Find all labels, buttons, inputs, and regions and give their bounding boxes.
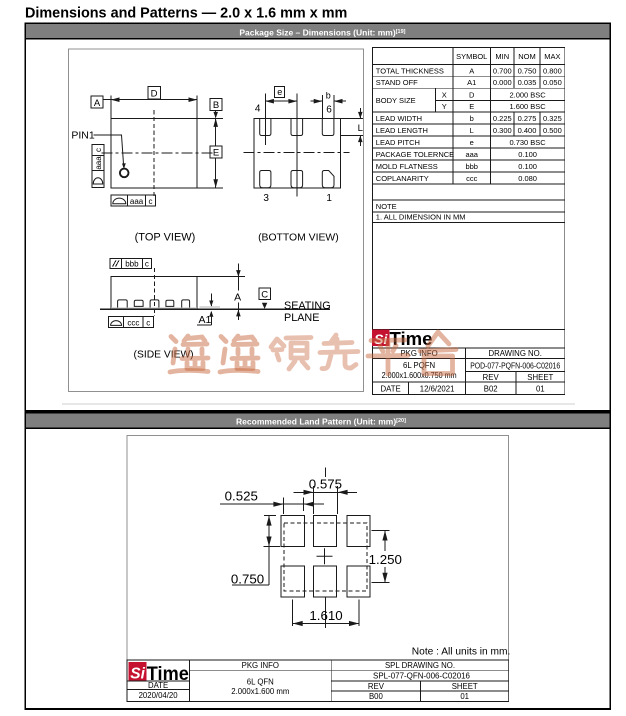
svg-text:1: 1: [326, 193, 332, 204]
svg-text:SEATING: SEATING: [284, 300, 331, 312]
svg-text:L: L: [470, 126, 474, 135]
svg-text:4: 4: [255, 104, 261, 115]
svg-text:PLANE: PLANE: [284, 312, 319, 324]
svg-text:c: c: [94, 148, 103, 152]
svg-text:LEAD PITCH: LEAD PITCH: [376, 138, 420, 147]
svg-text:PACKAGE TOLERNCE: PACKAGE TOLERNCE: [376, 150, 454, 159]
svg-text:0.700: 0.700: [493, 67, 512, 76]
svg-text:E: E: [469, 102, 474, 111]
svg-text:0.300: 0.300: [493, 126, 512, 135]
svg-text:Note : All units in mm.: Note : All units in mm.: [412, 647, 511, 658]
svg-text:B00: B00: [369, 692, 384, 701]
svg-text:Recommended Land Pattern (Unit: Recommended Land Pattern (Unit: mm)[20]: [236, 417, 406, 427]
svg-text:SPL DRAWING NO.: SPL DRAWING NO.: [385, 661, 455, 670]
svg-text:2020/04/20: 2020/04/20: [139, 691, 179, 700]
svg-text:6L PQFN: 6L PQFN: [403, 361, 435, 370]
svg-text:TOTAL THICKNESS: TOTAL THICKNESS: [376, 67, 444, 76]
svg-text:PIN1: PIN1: [71, 130, 95, 142]
svg-text:LEAD LENGTH: LEAD LENGTH: [376, 126, 428, 135]
svg-text:NOM: NOM: [518, 52, 536, 61]
svg-text:1.600 BSC: 1.600 BSC: [509, 102, 546, 111]
svg-text:A: A: [234, 292, 241, 304]
svg-text:D: D: [151, 88, 158, 99]
svg-text:0.000: 0.000: [493, 78, 512, 87]
svg-text:0.225: 0.225: [493, 114, 512, 123]
svg-text:SPL-077-QFN-006-C02016: SPL-077-QFN-006-C02016: [373, 672, 470, 681]
svg-text:Si: Si: [130, 665, 145, 682]
svg-text:A: A: [94, 98, 101, 109]
svg-text:BODY SIZE: BODY SIZE: [376, 96, 416, 105]
svg-text:0.325: 0.325: [543, 114, 562, 123]
svg-text:REV: REV: [483, 373, 500, 382]
svg-text:POD-077-PQFN-006-C02016: POD-077-PQFN-006-C02016: [470, 362, 560, 371]
svg-text:MIN: MIN: [495, 52, 509, 61]
svg-text:STAND OFF: STAND OFF: [376, 78, 418, 87]
svg-text:DATE: DATE: [380, 384, 400, 393]
svg-text:0.035: 0.035: [518, 78, 537, 87]
svg-text:NOTE: NOTE: [376, 202, 397, 211]
svg-text:MAX: MAX: [544, 52, 560, 61]
svg-text:01: 01: [536, 384, 545, 393]
svg-text:6L QFN: 6L QFN: [247, 677, 274, 686]
svg-text:B02: B02: [484, 384, 498, 393]
svg-text:C: C: [261, 290, 268, 301]
svg-text:bbb: bbb: [465, 162, 478, 171]
svg-text:SYMBOL: SYMBOL: [456, 52, 487, 61]
svg-text:e: e: [470, 138, 474, 147]
svg-text:2.000 BSC: 2.000 BSC: [509, 90, 546, 99]
svg-text:b: b: [470, 114, 474, 123]
svg-text:c: c: [149, 197, 153, 206]
svg-text:bbb: bbb: [125, 260, 139, 269]
svg-text:Y: Y: [442, 102, 447, 111]
svg-text:0.750: 0.750: [518, 67, 537, 76]
svg-text:0.050: 0.050: [543, 78, 562, 87]
svg-text:(BOTTOM VIEW): (BOTTOM VIEW): [258, 232, 339, 243]
svg-text:b: b: [326, 91, 331, 101]
svg-text:6: 6: [326, 105, 332, 116]
svg-text:ccc: ccc: [127, 318, 139, 327]
svg-text:SHEET: SHEET: [527, 373, 553, 382]
svg-text:0.100: 0.100: [518, 150, 537, 159]
svg-text:PKG INFO: PKG INFO: [242, 661, 279, 670]
svg-text:c: c: [145, 260, 149, 269]
svg-text:2.000x1.600 mm: 2.000x1.600 mm: [231, 687, 289, 696]
svg-text:X: X: [442, 90, 447, 99]
svg-text:A1: A1: [199, 314, 212, 326]
svg-text:COPLANARITY: COPLANARITY: [376, 174, 429, 183]
svg-text:01: 01: [460, 692, 469, 701]
svg-text:E: E: [213, 148, 219, 159]
svg-text:aaa: aaa: [130, 197, 144, 206]
svg-text:0.080: 0.080: [518, 174, 537, 183]
svg-text:D: D: [469, 90, 475, 99]
svg-text:(TOP VIEW): (TOP VIEW): [135, 231, 196, 243]
svg-text:L: L: [358, 123, 363, 134]
svg-text:3: 3: [263, 193, 269, 204]
svg-text:Package Size – Dimensions (Uni: Package Size – Dimensions (Unit: mm)[19]: [239, 28, 405, 38]
svg-text:0.730 BSC: 0.730 BSC: [509, 138, 546, 147]
svg-text:0.100: 0.100: [518, 162, 537, 171]
svg-text:A: A: [469, 67, 474, 76]
svg-text:SHEET: SHEET: [452, 682, 478, 691]
svg-text:MOLD FLATNESS: MOLD FLATNESS: [376, 162, 438, 171]
svg-text:0.500: 0.500: [543, 126, 562, 135]
svg-text:e: e: [277, 87, 282, 97]
svg-text:REV: REV: [368, 682, 385, 691]
svg-text:12/6/2021: 12/6/2021: [420, 384, 455, 393]
svg-text:DATE: DATE: [148, 681, 168, 690]
svg-text:0.400: 0.400: [518, 126, 537, 135]
svg-text:aaa: aaa: [94, 156, 103, 170]
svg-text:0.800: 0.800: [543, 67, 562, 76]
svg-text:LEAD WIDTH: LEAD WIDTH: [376, 114, 422, 123]
svg-text:aaa: aaa: [465, 150, 478, 159]
svg-text:c: c: [146, 318, 150, 327]
svg-text:1.250: 1.250: [369, 552, 402, 567]
svg-text:1. ALL DIMENSION IN MM: 1. ALL DIMENSION IN MM: [376, 213, 466, 222]
svg-text:Dimensions and Patterns — 2.0: Dimensions and Patterns — 2.0 x 1.6 mm x…: [25, 5, 347, 21]
svg-text:DRAWING NO.: DRAWING NO.: [488, 349, 541, 358]
svg-text:0.750: 0.750: [231, 572, 264, 587]
svg-text:B: B: [213, 100, 219, 111]
svg-text:0.525: 0.525: [225, 489, 258, 504]
svg-text:0.275: 0.275: [518, 114, 537, 123]
svg-text:A1: A1: [467, 78, 476, 87]
svg-text:1.610: 1.610: [309, 608, 342, 623]
svg-text:ccc: ccc: [466, 174, 478, 183]
